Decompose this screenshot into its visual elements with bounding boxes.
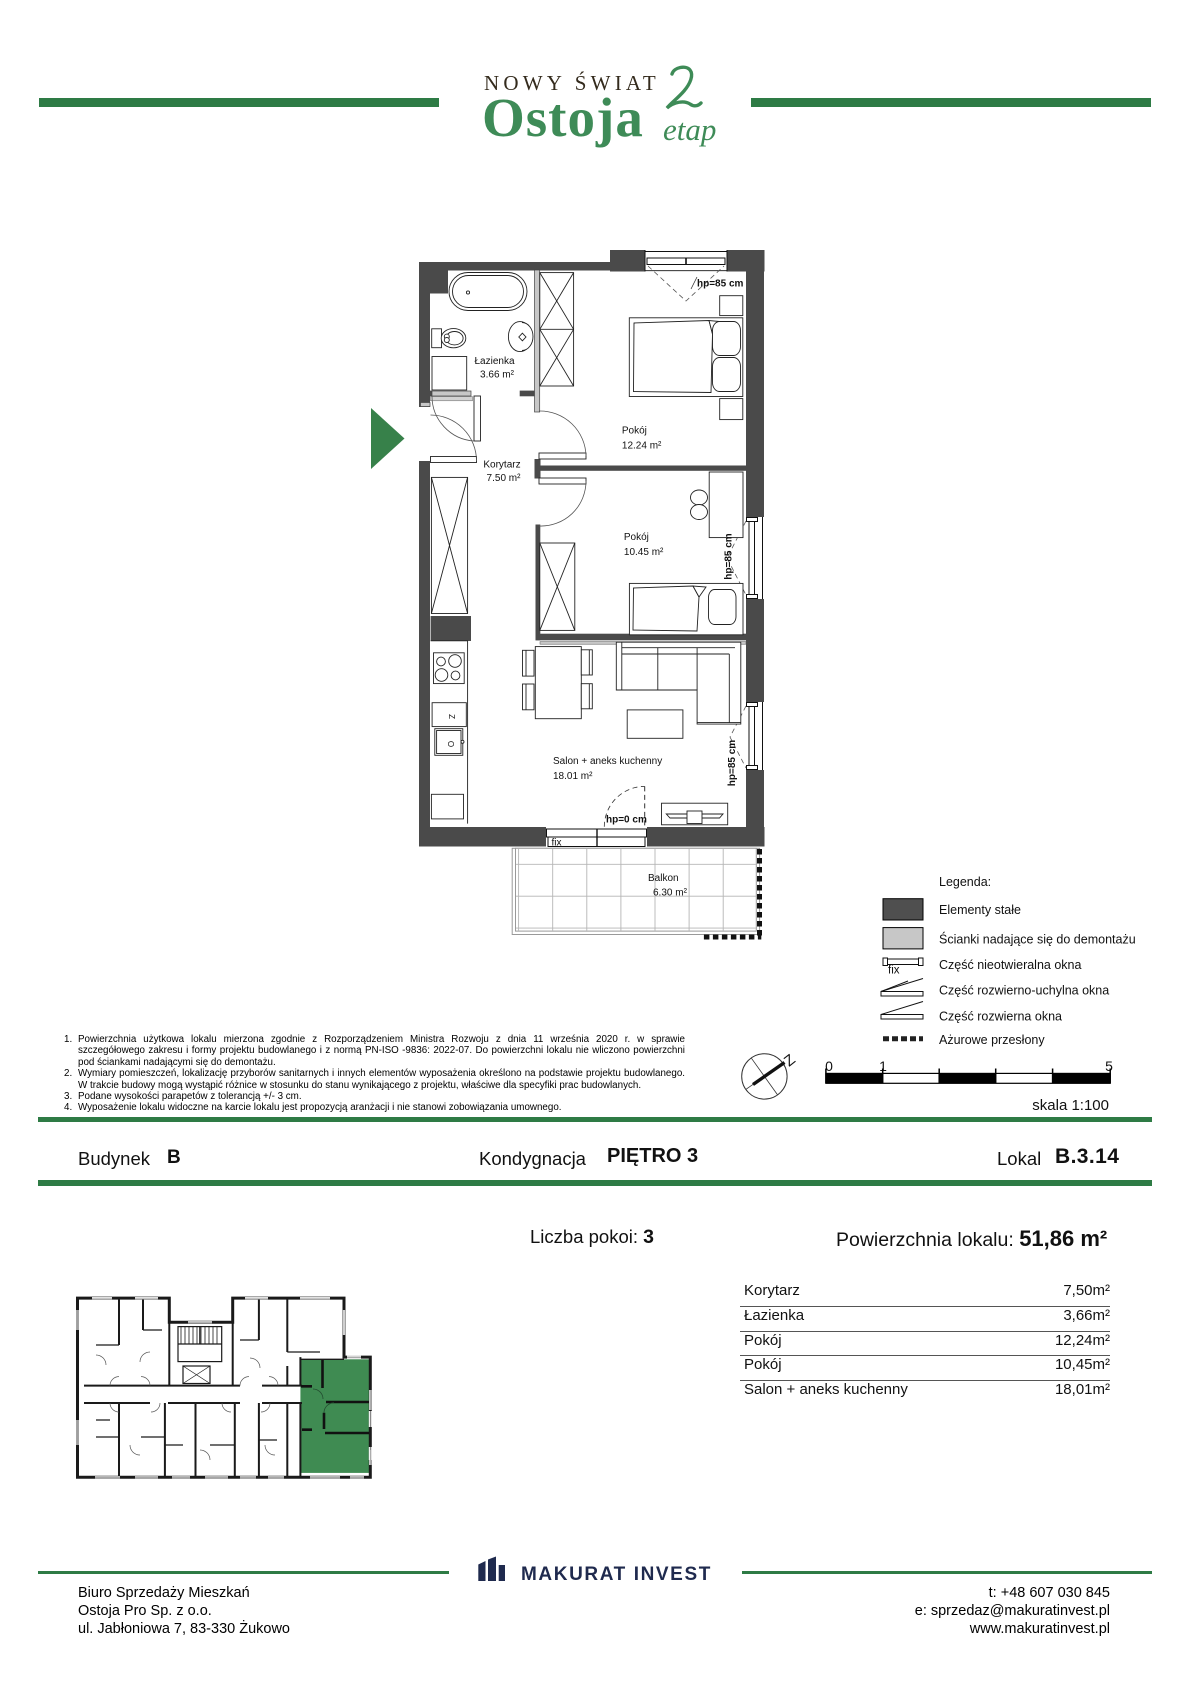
svg-text:O: O bbox=[446, 741, 455, 747]
svg-text:Łazienka: Łazienka bbox=[474, 356, 514, 367]
svg-text:Elementy stałe: Elementy stałe bbox=[939, 903, 1021, 917]
svg-text:Balkon: Balkon bbox=[648, 873, 679, 884]
svg-text:fix: fix bbox=[888, 965, 900, 977]
svg-text:7.50 m²: 7.50 m² bbox=[487, 473, 522, 484]
svg-text:Ażurowe przesłony: Ażurowe przesłony bbox=[939, 1033, 1045, 1047]
svg-text:18.01 m²: 18.01 m² bbox=[553, 771, 593, 782]
svg-text:hp=85 cm: hp=85 cm bbox=[697, 279, 744, 290]
svg-text:Korytarz: Korytarz bbox=[483, 460, 520, 471]
svg-text:fix: fix bbox=[552, 838, 562, 849]
svg-text:Salon + aneks kuchenny: Salon + aneks kuchenny bbox=[553, 756, 662, 767]
svg-text:10.45 m²: 10.45 m² bbox=[624, 547, 664, 558]
svg-text:5: 5 bbox=[1105, 1058, 1113, 1074]
svg-text:12.24 m²: 12.24 m² bbox=[622, 441, 662, 452]
svg-text:Z: Z bbox=[447, 714, 456, 719]
svg-text:Część nieotwieralna okna: Część nieotwieralna okna bbox=[939, 958, 1081, 972]
svg-text:Z: Z bbox=[781, 1051, 799, 1070]
svg-text:Część rozwierna okna: Część rozwierna okna bbox=[939, 1010, 1062, 1024]
svg-text:Ścianki nadające się do demont: Ścianki nadające się do demontażu bbox=[939, 932, 1136, 947]
svg-text:6.30 m²: 6.30 m² bbox=[653, 888, 688, 899]
svg-text:hp=85 cm: hp=85 cm bbox=[724, 533, 735, 580]
svg-text:hp=85 cm: hp=85 cm bbox=[727, 740, 738, 787]
svg-text:hp=0 cm: hp=0 cm bbox=[606, 815, 647, 826]
svg-text:skala 1:100: skala 1:100 bbox=[1032, 1097, 1109, 1114]
svg-text:Część rozwierno-uchylna okna: Część rozwierno-uchylna okna bbox=[939, 984, 1109, 998]
svg-text:3.66 m²: 3.66 m² bbox=[480, 370, 515, 381]
svg-text:Pokój: Pokój bbox=[622, 426, 647, 437]
svg-text:Legenda:: Legenda: bbox=[939, 875, 991, 889]
svg-text:Pokój: Pokój bbox=[624, 532, 649, 543]
